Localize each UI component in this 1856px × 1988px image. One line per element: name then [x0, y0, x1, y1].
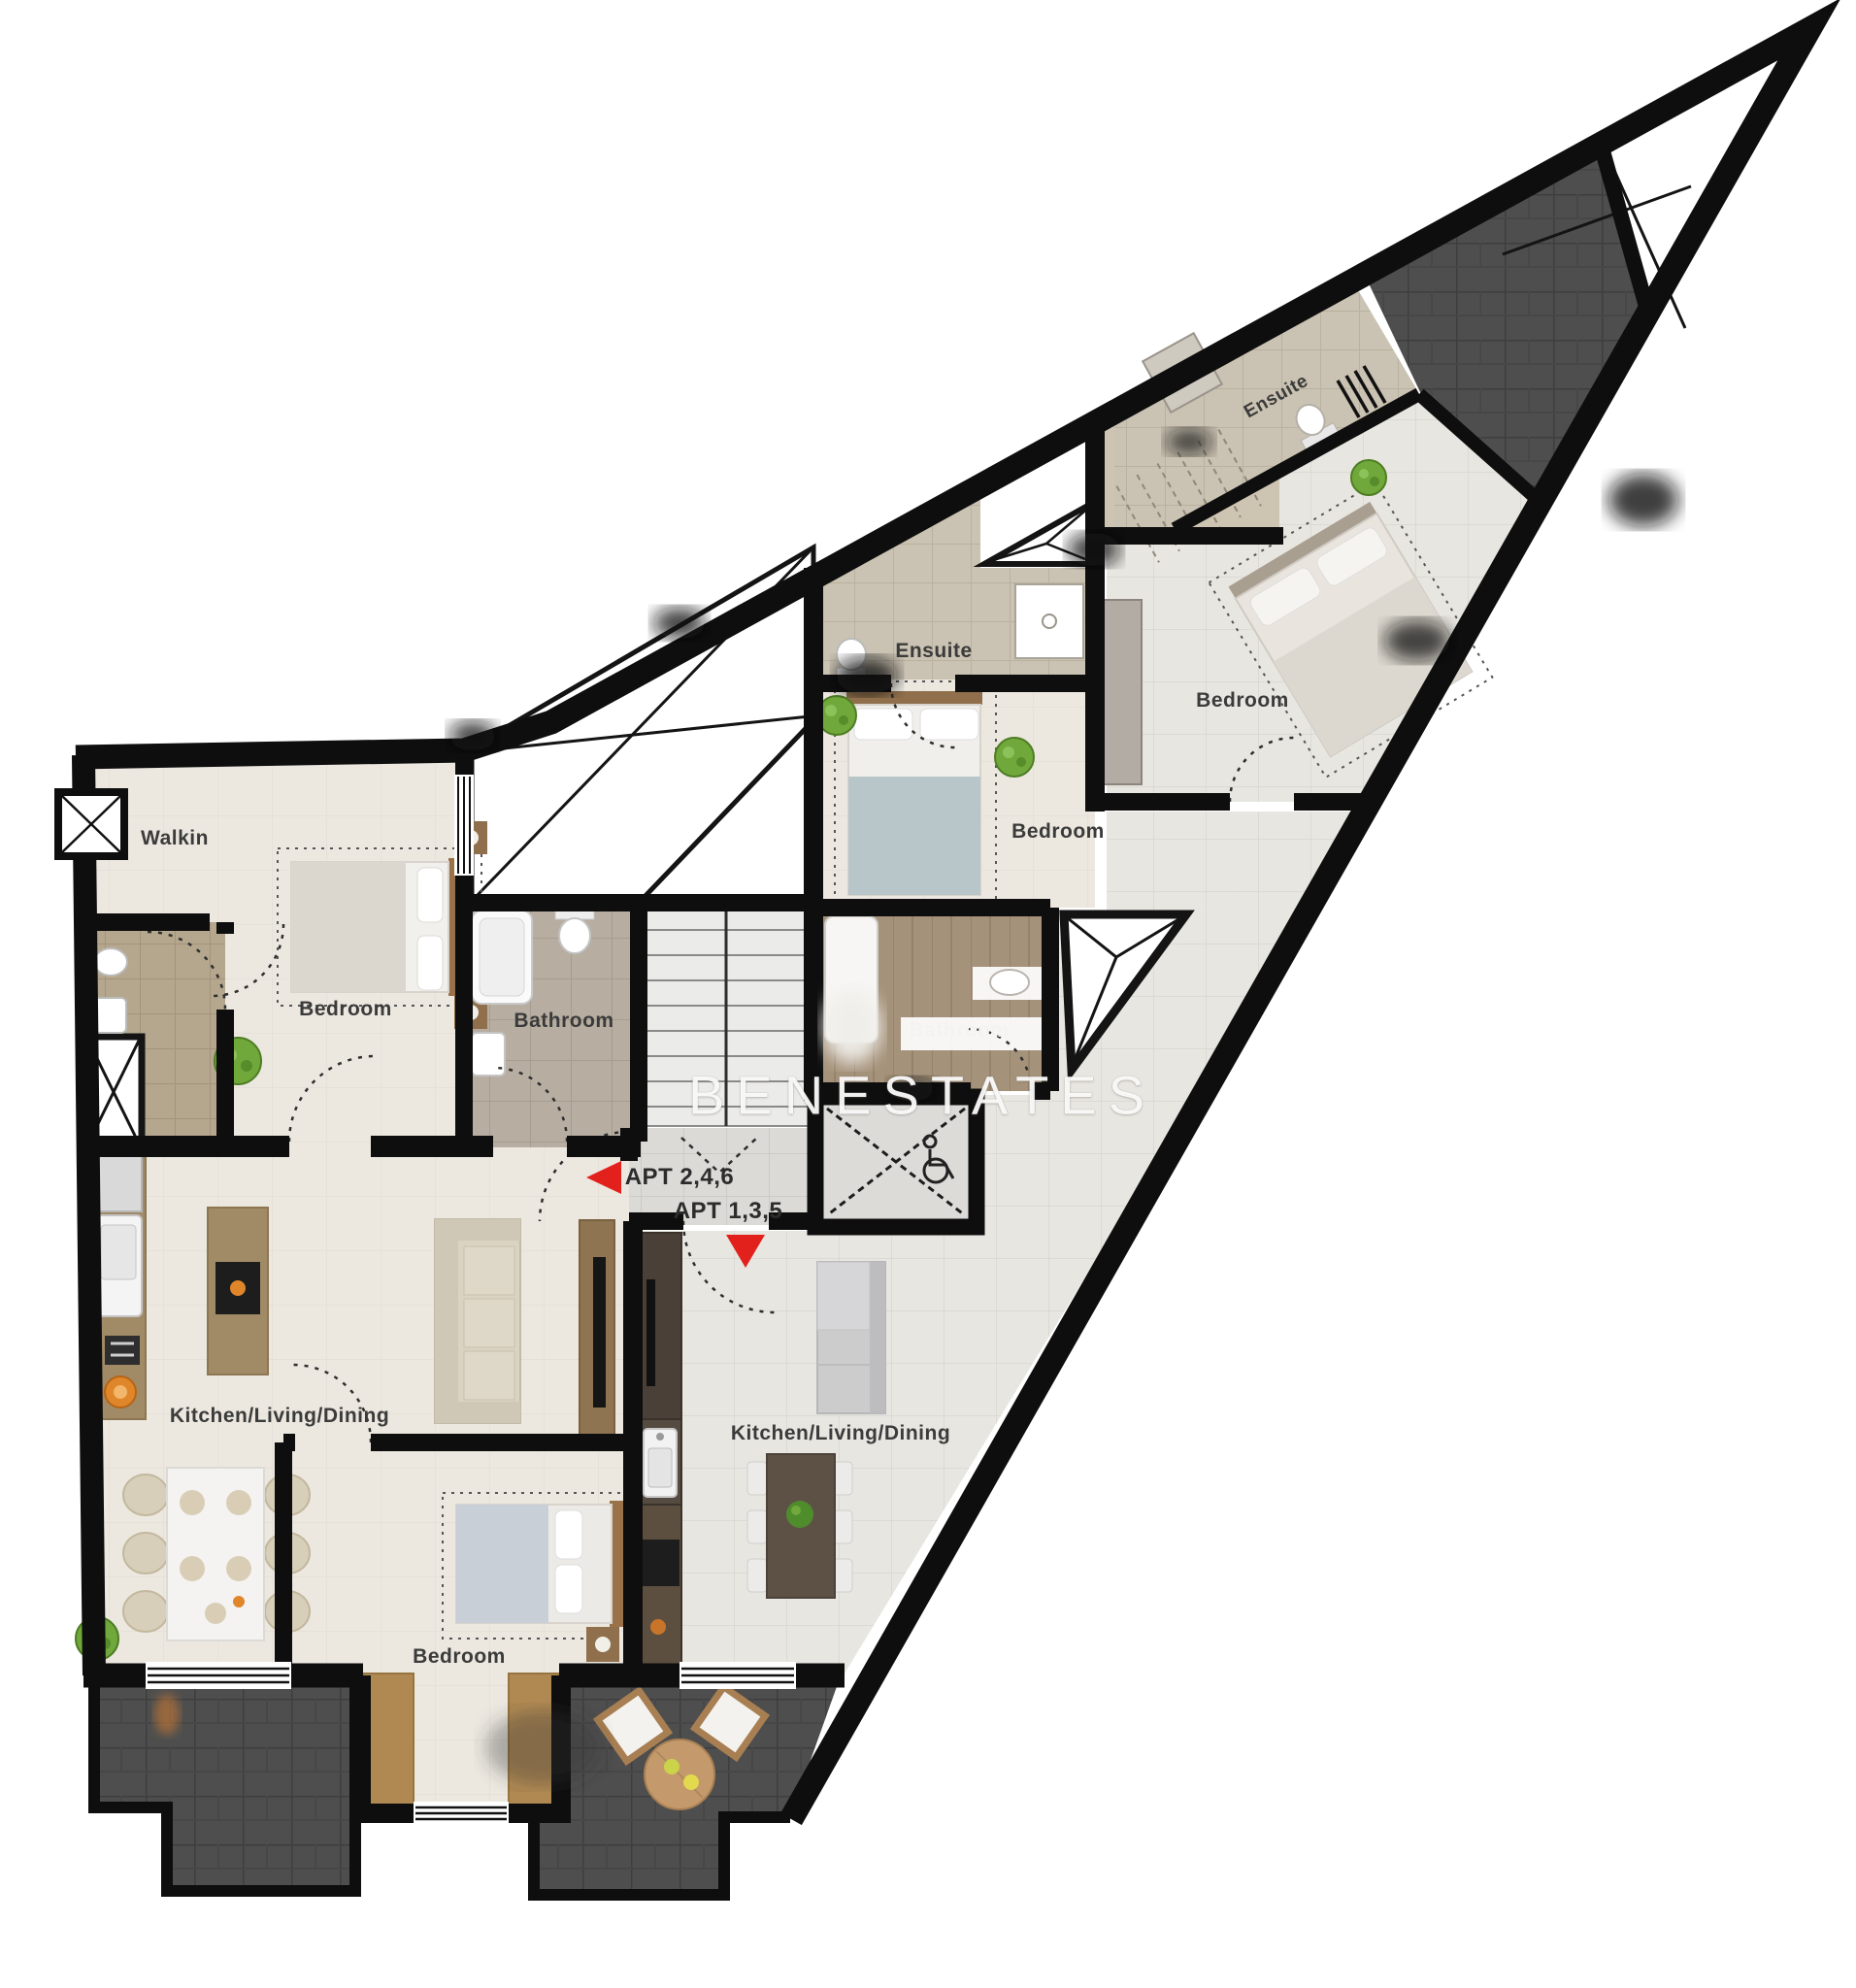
room-label-bathroom-central: Bathroom — [514, 1010, 613, 1033]
room-label-kitchen-living-dining-right: Kitchen/Living/Dining — [731, 1422, 950, 1445]
room-label-bedroom-bottom: Bedroom — [413, 1645, 506, 1669]
room-label-bedroom-middle: Bedroom — [1011, 820, 1105, 844]
floor-plan-drawing — [0, 0, 1856, 1988]
room-label-bathroom-middle: Bathroom — [909, 1019, 1009, 1043]
room-label-ensuite-middle: Ensuite — [895, 640, 972, 663]
unit-label-apt-2-4-6: APT 2,4,6 — [625, 1164, 735, 1191]
room-label-bedroom-top-right: Bedroom — [1196, 689, 1289, 712]
room-label-bedroom-left: Bedroom — [299, 998, 392, 1021]
room-label-walkin: Walkin — [141, 827, 209, 850]
unit-label-apt-1-3-5: APT 1,3,5 — [674, 1198, 783, 1225]
floor-plan: Walkin Bedroom Bathroom Ensuite Bedroom … — [0, 0, 1856, 1988]
benestates-watermark: BENESTATES — [688, 1064, 1156, 1127]
room-label-kitchen-living-dining-left: Kitchen/Living/Dining — [170, 1405, 389, 1428]
